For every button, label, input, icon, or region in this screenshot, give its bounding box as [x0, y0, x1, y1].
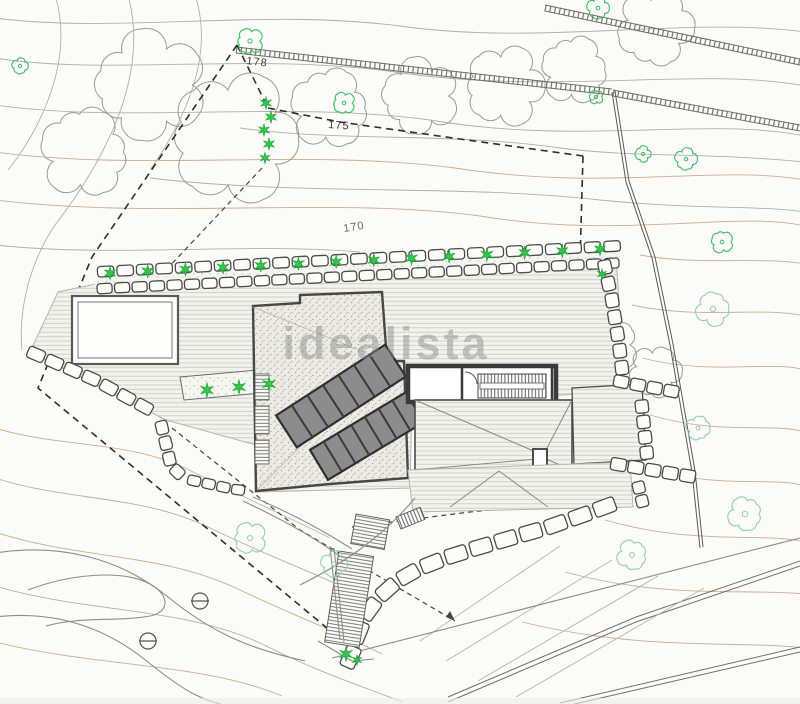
contour-label-170: 170: [343, 220, 366, 235]
photo-edge: [0, 698, 800, 704]
wall-block: [237, 276, 252, 287]
wall-block: [640, 446, 654, 460]
wall-block: [359, 270, 374, 281]
wall-block: [202, 278, 217, 289]
wall-block: [644, 463, 661, 478]
wall-block: [158, 435, 173, 451]
wall-block: [187, 475, 202, 488]
wall-block: [117, 265, 134, 276]
entrance-stair-structure: [408, 366, 556, 402]
wall-block: [419, 552, 445, 574]
canopy-outline: [94, 28, 203, 141]
tree-icon: [728, 497, 761, 531]
wall-block: [636, 415, 650, 429]
wall-block: [374, 577, 400, 603]
wall-block: [604, 241, 621, 252]
wall-block: [534, 261, 549, 272]
wall-block: [543, 514, 569, 535]
wall-block: [610, 326, 625, 342]
wall-block: [155, 420, 170, 436]
tree-icon: [675, 148, 698, 171]
wall-block: [195, 261, 212, 272]
wall-block: [254, 275, 269, 286]
wall-block: [429, 267, 444, 278]
site-plan: 178 175 170 idealista: [0, 0, 800, 704]
wall-block: [272, 257, 289, 268]
wall-block: [679, 468, 696, 483]
wall-block: [394, 268, 409, 279]
wall-block: [646, 381, 663, 396]
wall-block: [601, 276, 617, 292]
wall-block: [662, 466, 679, 481]
wall-block: [607, 309, 622, 325]
stair-handrail: [480, 383, 544, 389]
wall-block: [605, 292, 620, 308]
wall-block: [350, 253, 367, 264]
wall-block: [307, 273, 322, 284]
idealista-watermark: idealista: [282, 318, 489, 369]
tree-icon: [711, 232, 732, 253]
canopy-outline: [686, 416, 710, 440]
wall-block: [610, 457, 627, 472]
tree-icon: [695, 292, 728, 326]
wall-block: [377, 269, 392, 280]
wall-block: [272, 274, 287, 285]
swimming-pool: [72, 296, 178, 364]
plant-star-icon: [259, 124, 269, 136]
wall-block: [518, 522, 543, 542]
wall-block: [443, 544, 468, 565]
canopy-outline: [617, 540, 646, 569]
canopy-outline: [41, 107, 126, 195]
wall-block: [389, 251, 406, 262]
wall-block: [342, 271, 357, 282]
wall-block: [311, 255, 328, 266]
wall-block: [632, 480, 646, 494]
wall-block: [629, 378, 646, 393]
wall-block: [481, 264, 496, 275]
wall-block: [428, 249, 445, 260]
canopy-outline: [675, 148, 698, 171]
wall-block: [231, 484, 245, 496]
tree-icon: [235, 523, 265, 553]
wall-block: [551, 260, 566, 271]
wall-block: [201, 478, 216, 491]
wall-block: [97, 283, 112, 294]
wall-block: [464, 265, 479, 276]
east-wing-roof: [572, 384, 646, 464]
wall-block: [411, 267, 426, 278]
wall-block: [516, 262, 531, 273]
canopy-outline: [235, 523, 265, 553]
wall-block: [569, 260, 584, 271]
wall-block: [663, 384, 680, 399]
wall-block: [638, 430, 652, 444]
plant-star-icon: [260, 153, 270, 164]
wall-block: [324, 272, 339, 283]
wall-block: [132, 281, 147, 292]
canopy-outline: [291, 68, 367, 146]
plant-star-icon: [264, 138, 274, 150]
canopy-outline: [728, 497, 761, 531]
wall-block: [289, 274, 304, 285]
canopy-outline: [174, 73, 298, 203]
garden-paths: [243, 497, 415, 585]
chimney: [533, 449, 547, 466]
wall-block: [613, 374, 630, 389]
wall-block: [627, 460, 644, 475]
canopy-outline: [334, 92, 355, 113]
wall-block: [499, 263, 514, 274]
wall-block: [635, 399, 649, 413]
tree-icon: [617, 540, 646, 569]
contour-label-175: 175: [328, 119, 350, 132]
site-plan-drawing: 178 175 170 idealista: [0, 0, 800, 704]
tree-icon: [686, 416, 710, 440]
wall-block: [615, 360, 630, 375]
wall-block: [493, 529, 518, 550]
canopy-outline: [695, 292, 728, 326]
canopy-outline: [542, 36, 606, 103]
contour-label-178: 178: [246, 55, 269, 70]
canopy-outline: [618, 0, 695, 66]
wall-block: [613, 343, 628, 358]
hip-roof-wing: [415, 400, 572, 470]
wall-block: [446, 266, 461, 277]
wall-block: [395, 563, 422, 587]
west-staircase: [255, 374, 269, 464]
wall-block: [149, 281, 164, 292]
wall-block: [156, 263, 173, 274]
arrowhead: [446, 611, 455, 621]
wall-block: [167, 280, 182, 291]
wall-block: [468, 536, 493, 557]
plant-star-icon: [261, 97, 271, 109]
wall-block: [233, 259, 250, 270]
wall-block: [114, 282, 129, 293]
tree-icon: [334, 92, 355, 113]
wall-block: [184, 279, 199, 290]
canopy-outline: [711, 232, 732, 253]
wall-block: [219, 277, 234, 288]
wall-block: [216, 481, 231, 494]
wall-block: [635, 494, 649, 508]
